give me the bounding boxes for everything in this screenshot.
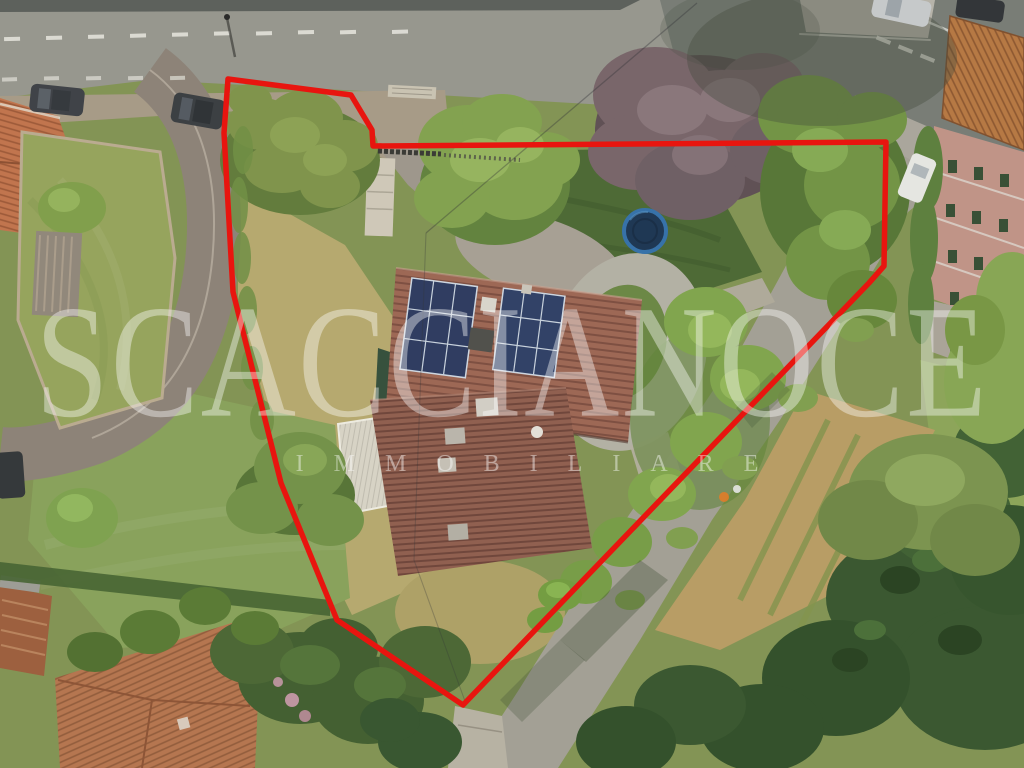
- aerial-photo-canvas: [0, 0, 1024, 768]
- aerial-photo: SCACCIANOCE IMMOBILIARE: [0, 0, 1024, 768]
